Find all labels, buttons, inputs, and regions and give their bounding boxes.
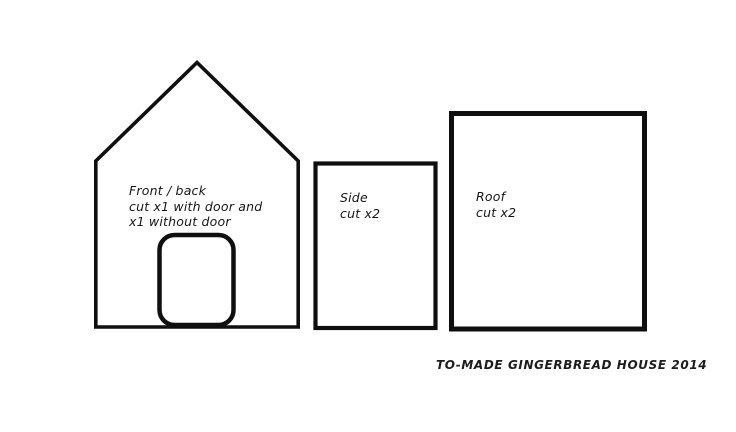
roof-piece-label: Roof cut x2 — [476, 189, 516, 220]
front-back-piece-label: Front / back cut x1 with door and x1 wit… — [129, 183, 262, 230]
front-back-label-line-3: x1 without door — [129, 214, 262, 230]
side-piece-label: Side cut x2 — [340, 190, 380, 221]
front-back-label-line-1: Front / back — [129, 183, 262, 199]
side-label-line-1: Side — [340, 190, 380, 206]
diagram-caption: TO-MADE GINGERBREAD HOUSE 2014 — [436, 358, 707, 372]
roof-label-line-2: cut x2 — [476, 205, 516, 221]
gingerbread-template-diagram: Front / back cut x1 with door and x1 wit… — [0, 0, 736, 432]
front-back-label-line-2: cut x1 with door and — [129, 199, 262, 215]
roof-piece-outline — [452, 114, 645, 330]
roof-label-line-1: Roof — [476, 189, 516, 205]
side-piece-outline — [316, 164, 436, 329]
side-label-line-2: cut x2 — [340, 206, 380, 222]
door-cutout-outline — [160, 235, 234, 325]
